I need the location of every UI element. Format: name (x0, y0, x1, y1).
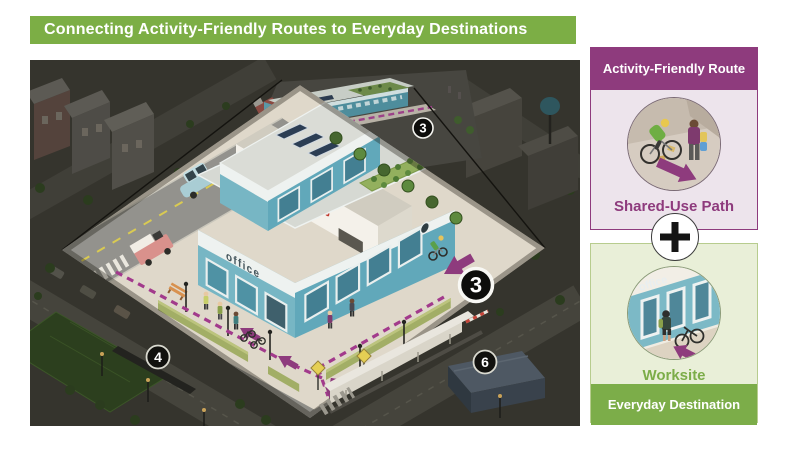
plus-icon (651, 213, 699, 261)
destination-panel-footer: Everyday Destination (591, 384, 757, 425)
route-panel-header: Activity-Friendly Route (591, 48, 757, 90)
badge-3-overview: 3 (413, 118, 433, 138)
isometric-city-svg: Public Parking office (30, 60, 580, 426)
activity-friendly-route-panel: Activity-Friendly Route (590, 47, 758, 230)
shared-use-path-icon (628, 98, 720, 190)
worksite-photo: office (627, 266, 721, 360)
badge-6: 6 (474, 351, 497, 374)
badge-4: 4 (147, 346, 170, 369)
svg-text:3: 3 (470, 273, 482, 298)
legend-sidebar: Activity-Friendly Route (590, 47, 758, 423)
destination-panel-caption: Worksite (591, 367, 757, 384)
shared-use-path-photo (627, 97, 721, 191)
svg-text:4: 4 (154, 349, 162, 365)
svg-text:6: 6 (481, 354, 489, 370)
badge-3-main: 3 (460, 269, 493, 302)
city-illustration: Public Parking office (30, 60, 580, 426)
everyday-destination-panel: office (590, 243, 758, 423)
page-title: Connecting Activity-Friendly Routes to E… (30, 16, 576, 44)
worksite-icon: office (628, 267, 720, 359)
svg-text:3: 3 (419, 121, 426, 136)
